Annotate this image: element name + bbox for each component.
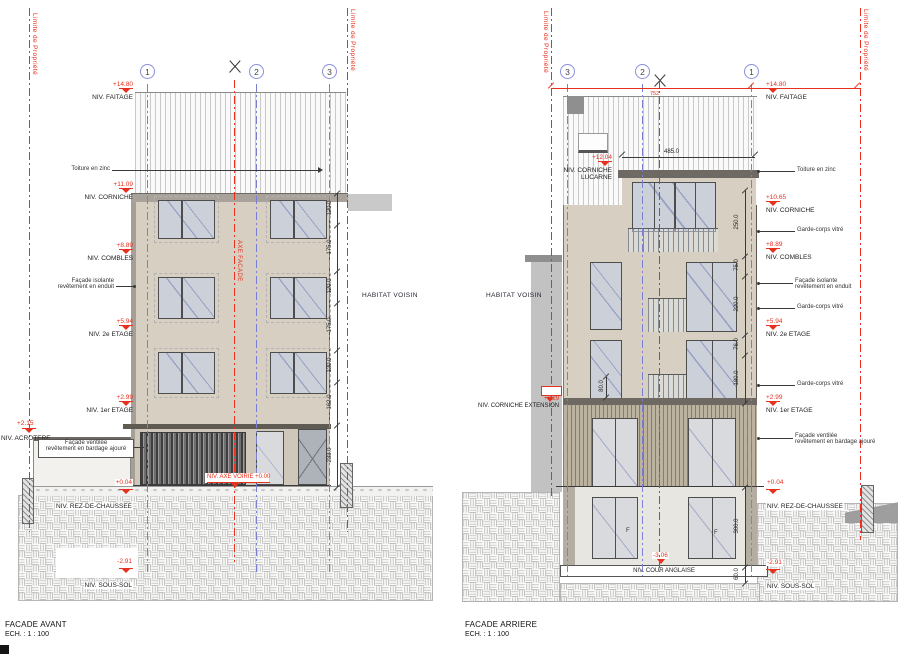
neighbor-label: HABITAT VOISIN [362, 292, 418, 299]
level-value-acrotere: +2.15 [17, 420, 33, 427]
dim: 180.0 [734, 365, 740, 391]
ground-hatch-rear-center [560, 583, 760, 602]
level-marker-etage2: +5.94NIV. 2e ETAGE [766, 318, 846, 338]
leader-arrow [318, 167, 323, 173]
note-facade-isolante: Façade isolante revêtement en enduit [795, 278, 851, 290]
property-line-label: Limite de Propriété [542, 11, 549, 73]
property-line [29, 8, 30, 532]
level-marker-corniche: +10.65NIV. CORNICHE [766, 194, 846, 214]
dim: 120.0 [327, 195, 333, 221]
facade-axis-line [234, 80, 235, 562]
rear-scale: ECH. : 1 : 100 [465, 631, 509, 638]
level-marker-etage1: +2.99NIV. 1er ETAGE [766, 394, 846, 414]
road-axis-marker [231, 483, 239, 488]
lucarne-cornice-band [618, 170, 759, 178]
property-line [347, 8, 348, 532]
level-marker-corniche: +11.09NIV. CORNICHE [53, 181, 133, 201]
level-marker-combles: +8.89NIV. COMBLES [766, 241, 846, 261]
facade-axis-label: AXE FACADE [236, 240, 242, 282]
axis-cross-icon [228, 60, 242, 74]
dim-chain-line-front [337, 193, 338, 487]
pillar-section [861, 485, 874, 533]
roof-note: Toiture en zinc [30, 166, 110, 172]
note-garde-corps: Garde-corps vitré [797, 304, 843, 310]
facade-axis-line [659, 80, 660, 572]
property-line [860, 8, 861, 540]
grid-bubble-2: 2 [635, 64, 650, 79]
rear-title: FACADE ARRIERE [465, 620, 537, 629]
level-value-extension: +3.29 [541, 386, 562, 396]
window [632, 182, 716, 232]
service-door [298, 429, 327, 485]
window [592, 497, 638, 559]
grid-bubble-1: 1 [140, 64, 155, 79]
level-marker-extension-tri [546, 397, 554, 402]
level-marker-faitage: +14.80NIV. FAITAGE [766, 81, 846, 101]
window-tag: F [626, 528, 630, 534]
grid-bubble-2: 2 [249, 64, 264, 79]
level-label-extension: NIV. CORNICHE EXTENSION [478, 403, 558, 410]
extension-cornice-band [563, 398, 757, 405]
grid-line-2 [256, 84, 257, 574]
grid-line-1 [147, 84, 148, 574]
dim: 120.0 [327, 273, 333, 299]
dim-chain-line-rear [745, 190, 746, 403]
grid-bubble-1: 1 [744, 64, 759, 79]
front-title: FACADE AVANT [5, 620, 67, 629]
roof-box [567, 96, 584, 114]
road-axis-label: NIV. AXE VOIRIE +0.00 [207, 474, 270, 483]
level-marker-lucarne: +12.04 NIV. CORNICHELUCARNE [558, 154, 612, 181]
neighbor-wall-rear [531, 255, 562, 492]
note-facade-ventilee: Façade ventilée revêtement en bardage aj… [795, 433, 875, 445]
property-dim-value: 752 [650, 91, 659, 97]
dim: 75.0 [734, 252, 740, 278]
grid-bubble-3: 3 [322, 64, 337, 79]
glass-railing [648, 298, 686, 332]
window [270, 200, 327, 239]
pillar-section [22, 478, 34, 524]
dim: 162.0 [327, 389, 333, 415]
note-facade-isolante: Façade isolante revêtement en enduit [2, 278, 114, 290]
property-line [551, 8, 552, 496]
note-garde-corps: Garde-corps vitré [797, 381, 843, 387]
cour-side-wall [563, 487, 575, 577]
dim: 250.0 [734, 209, 740, 235]
window [158, 200, 215, 239]
note-facade-ventilee: Façade ventilée revêtement en bardage aj… [38, 439, 134, 458]
window [158, 277, 215, 319]
dim: 80.0 [599, 373, 605, 399]
level-marker-etage1: +2.99NIV. 1er ETAGE [53, 394, 133, 414]
dim: 120.0 [327, 352, 333, 378]
roof-note: Toiture en zinc [797, 167, 836, 173]
roof-skylight [578, 133, 608, 153]
window [688, 497, 736, 559]
dim: 60.0 [734, 561, 740, 587]
window [158, 352, 215, 394]
elevation-sheet: Limite de Propriété Limite de Propriété … [0, 0, 900, 658]
window [270, 352, 327, 394]
property-line-label: Limite de Propriété [31, 13, 38, 75]
window [590, 262, 622, 330]
property-line-label: Limite de Propriété [349, 9, 356, 71]
level-marker-faitage: +14.80NIV. FAITAGE [53, 81, 133, 101]
dim: 485.0 [664, 149, 679, 156]
level-marker-etage2: +5.94NIV. 2e ETAGE [53, 318, 133, 338]
note-garde-corps: Garde-corps vitré [797, 227, 843, 233]
dim: 76.0 [734, 331, 740, 357]
window [592, 418, 638, 487]
level-marker-rdc: +0.04NIV. REZ-DE-CHAUSSEE [53, 471, 133, 513]
neighbor-label: HABITAT VOISIN [486, 292, 542, 299]
dim: 175.0 [327, 312, 333, 338]
front-scale: ECH. : 1 : 100 [5, 631, 49, 638]
window [688, 418, 736, 487]
ground-hatch-rear-left [462, 492, 560, 602]
axis-cross-icon [653, 74, 667, 88]
dim: 220.0 [734, 291, 740, 317]
dim: 233.0 [327, 442, 333, 468]
dim: 175.0 [327, 234, 333, 260]
window [686, 262, 737, 332]
neighbor-cornice-front [348, 194, 392, 211]
level-marker-combles: +8.89NIV. COMBLES [53, 242, 133, 262]
neighbor-cap-rear [525, 255, 562, 262]
property-line-label: Limite de Propriété [862, 9, 869, 71]
level-marker-soussol: -2.91NIV. SOUS-SOL [766, 551, 846, 593]
zinc-roof-front [135, 92, 346, 193]
window-tag: F [714, 530, 718, 536]
sheet-corner-mark [0, 645, 9, 654]
level-marker-rdc: +0.04NIV. REZ-DE-CHAUSSEE [766, 471, 846, 513]
window [270, 277, 327, 319]
grid-bubble-3: 3 [560, 64, 575, 79]
dim: 300.0 [734, 513, 740, 539]
level-marker-soussol: -2.91NIV. SOUS-SOL [53, 550, 133, 592]
